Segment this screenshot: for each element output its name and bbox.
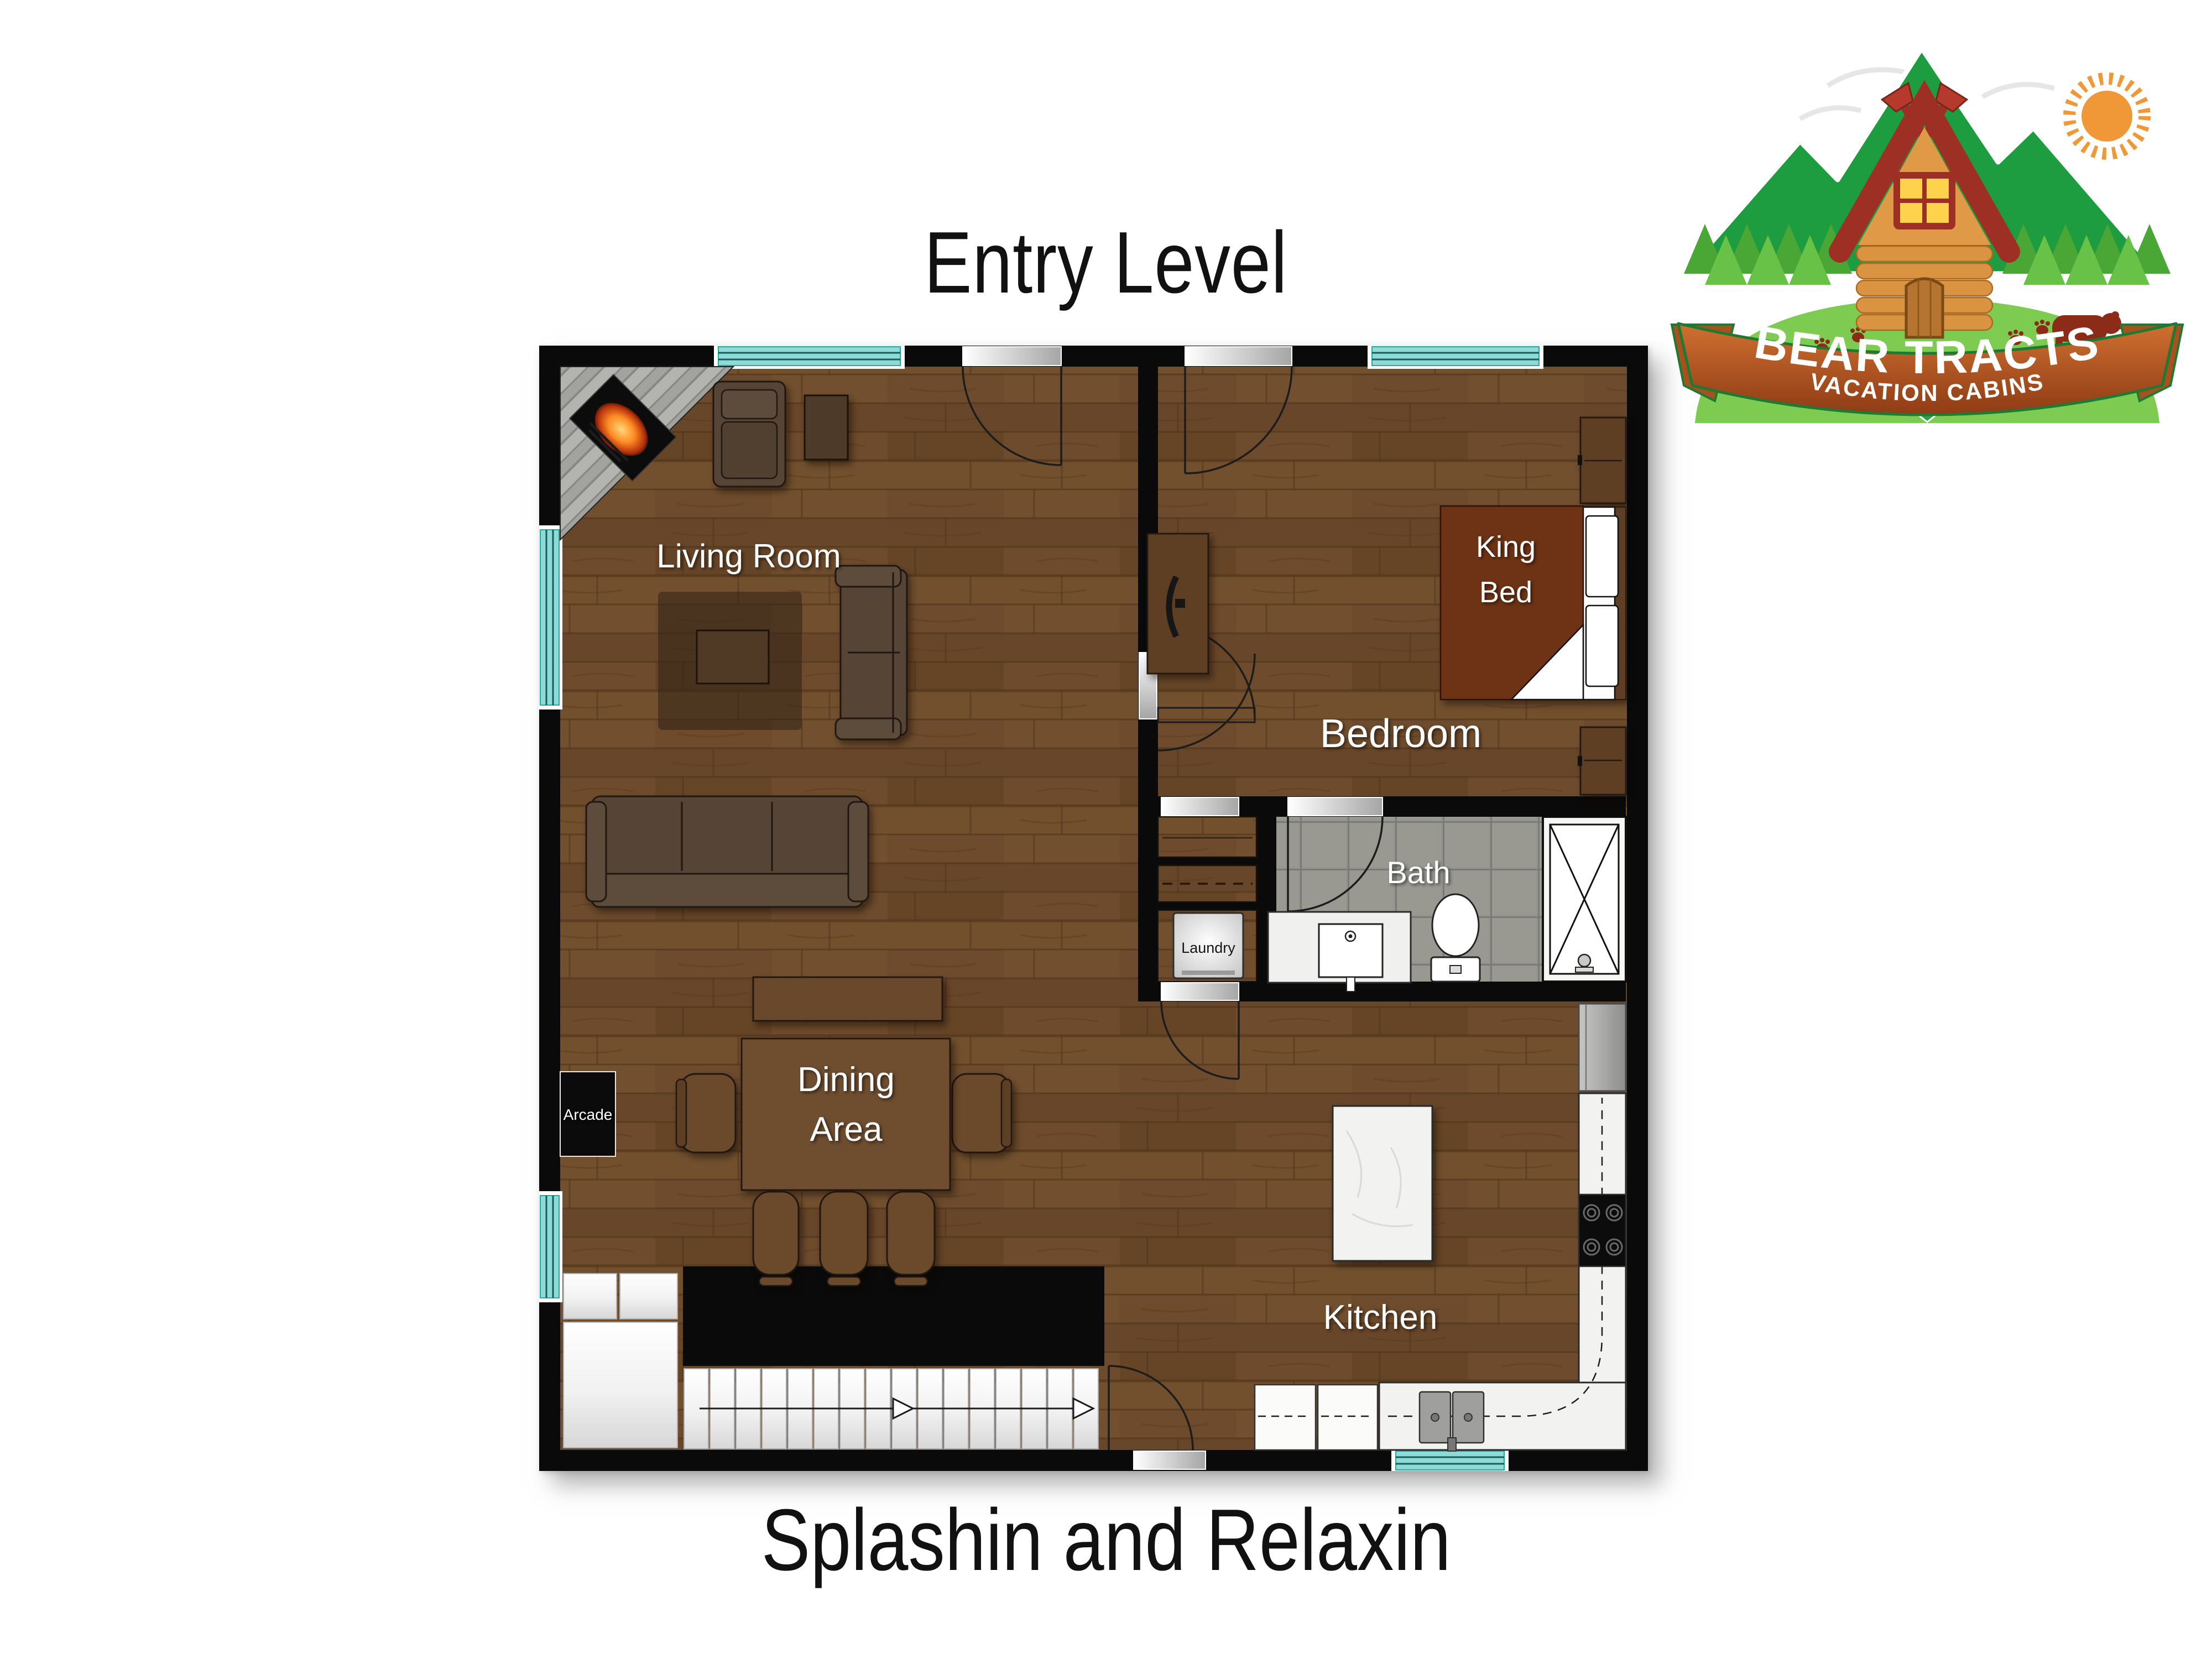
room-label-bath: Bath	[1386, 855, 1450, 890]
arcade-cabinet: Arcade	[560, 1072, 615, 1156]
dining-chair-right	[952, 1074, 1011, 1152]
window-left-living	[539, 525, 562, 709]
armchair	[713, 382, 785, 487]
room-label-laundry: Laundry	[1181, 940, 1235, 956]
opening-laundry-hall	[1161, 983, 1239, 1000]
dresser-tv	[1147, 534, 1208, 674]
side-table	[805, 395, 848, 460]
buffet	[753, 977, 942, 1021]
closet-divider-1	[1158, 857, 1256, 865]
opening-bath-door	[1288, 797, 1383, 816]
stove	[1579, 1194, 1626, 1266]
window-top-living	[714, 346, 905, 369]
room-label-kitchen: Kitchen	[1323, 1298, 1438, 1337]
coffee-table	[658, 592, 802, 730]
opening-entry-door	[963, 347, 1061, 366]
faucet-icon	[1448, 1438, 1456, 1451]
page: Entry Level	[0, 0, 2212, 1659]
page-caption: Splashin and Relaxin	[0, 1490, 2212, 1590]
pillow	[1586, 516, 1618, 597]
opening-bedroom-door	[1185, 347, 1292, 366]
bed-label-line1: King	[1476, 530, 1536, 564]
label-arcade: Arcade	[564, 1106, 613, 1123]
window-left-dining	[539, 1191, 562, 1302]
opening-closet	[1161, 797, 1239, 816]
sofa-long	[586, 796, 868, 907]
bath-sink	[1319, 924, 1383, 977]
closet-dresser	[1158, 817, 1256, 857]
dining-chair-bottom-2	[820, 1192, 868, 1286]
dining-chair-left	[676, 1074, 735, 1152]
kitchen-cabinet-2	[1318, 1385, 1378, 1450]
room-label-dining-line1: Dining	[797, 1061, 895, 1099]
dining-chair-bottom-1	[753, 1192, 799, 1286]
floor-plan: Laundry	[539, 346, 1648, 1471]
dining-chair-bottom-3	[887, 1192, 935, 1286]
room-label-living-room: Living Room	[656, 538, 841, 575]
laundry-room: Laundry	[1158, 910, 1256, 982]
vanity	[1268, 912, 1411, 992]
bed-label-line2: Bed	[1479, 576, 1532, 609]
room-label-bedroom: Bedroom	[1320, 712, 1481, 756]
window-top-bedroom	[1368, 346, 1543, 369]
logo: BEAR TRACTS VACATION CABINS	[1662, 14, 2193, 423]
cabin-door-icon	[1906, 279, 1943, 337]
closet-divider-2	[1158, 902, 1256, 910]
king-bed: King Bed	[1441, 506, 1626, 700]
toilet	[1431, 894, 1480, 982]
pillow	[1586, 606, 1618, 686]
closet-rod	[1158, 865, 1256, 902]
opening-south	[1134, 1451, 1206, 1469]
sofa-small	[836, 566, 907, 739]
kitchen-cabinet-1	[1255, 1385, 1316, 1450]
nightstand-bottom	[1578, 727, 1626, 795]
shower	[1543, 817, 1626, 982]
room-label-dining-line2: Area	[810, 1110, 883, 1149]
fridge	[1579, 1004, 1626, 1091]
nightstand-top	[1578, 418, 1626, 503]
sun-icon	[2069, 79, 2145, 154]
kitchen-island	[1333, 1106, 1432, 1261]
